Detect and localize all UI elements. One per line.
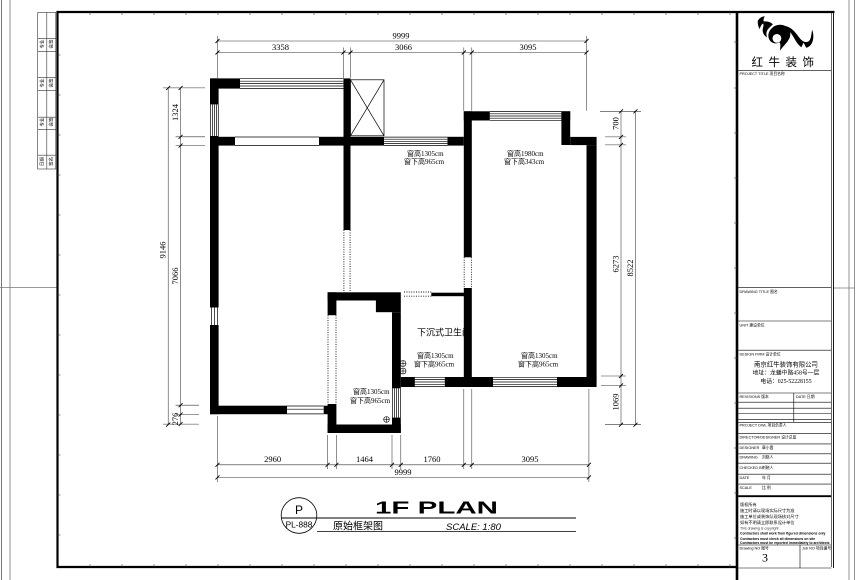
svg-text:年 月: 年 月 xyxy=(762,475,771,480)
svg-text:3: 3 xyxy=(762,551,768,565)
svg-text:SCALE: SCALE xyxy=(740,486,753,490)
svg-text:如有不明请立即联系设计单位: 如有不明请立即联系设计单位 xyxy=(740,519,794,526)
svg-text:DESIGNER: DESIGNER xyxy=(740,446,760,450)
svg-text:窗高1305cm: 窗高1305cm xyxy=(353,387,390,396)
svg-text:窗下高965cm: 窗下高965cm xyxy=(414,360,455,369)
svg-text:地址：龙蟠中路458号一层: 地址：龙蟠中路458号一层 xyxy=(753,369,820,377)
svg-text:刘晓人: 刘晓人 xyxy=(762,455,774,460)
svg-text:DATE 日期: DATE 日期 xyxy=(796,394,815,399)
svg-text:专业: 专业 xyxy=(39,78,46,87)
svg-text:1760: 1760 xyxy=(424,454,441,464)
svg-text:下沉式卫生间: 下沉式卫生间 xyxy=(417,327,471,338)
svg-text:DIRECTOR/DESIGNER 设计总监: DIRECTOR/DESIGNER 设计总监 xyxy=(740,434,797,439)
svg-text:8522: 8522 xyxy=(625,260,635,277)
svg-text:专业: 专业 xyxy=(39,117,46,126)
svg-text:9999: 9999 xyxy=(393,31,410,41)
svg-text:DRAWING TITLE 图名: DRAWING TITLE 图名 xyxy=(740,289,778,294)
svg-text:PL-888: PL-888 xyxy=(286,520,313,530)
svg-text:1464: 1464 xyxy=(356,454,374,464)
svg-text:窗下高965cm: 窗下高965cm xyxy=(404,157,445,166)
svg-text:窗高1305cm: 窗高1305cm xyxy=(407,149,444,158)
svg-text:原始框架图: 原始框架图 xyxy=(333,520,383,533)
svg-text:会签: 会签 xyxy=(48,117,55,126)
svg-text:1069: 1069 xyxy=(611,394,621,411)
svg-text:窗下高343cm: 窗下高343cm xyxy=(504,157,545,166)
svg-text:施工单位或装饰队现场核对尺寸: 施工单位或装饰队现场核对尺寸 xyxy=(740,513,799,520)
svg-text:276: 276 xyxy=(170,413,180,426)
svg-text:Contractors must be reported i: Contractors must be reported immediately… xyxy=(740,541,830,545)
svg-text:REVISIONS 版本: REVISIONS 版本 xyxy=(740,394,770,399)
svg-text:Contractors must check all dim: Contractors must check all dimensions on… xyxy=(740,537,815,541)
svg-text:3066: 3066 xyxy=(395,42,412,52)
svg-text:6273: 6273 xyxy=(611,256,621,273)
svg-text:章小霞: 章小霞 xyxy=(762,445,774,450)
svg-text:南京红牛装饰有限公司: 南京红牛装饰有限公司 xyxy=(754,360,818,369)
svg-text:1324: 1324 xyxy=(170,103,180,121)
svg-text:窗下高965cm: 窗下高965cm xyxy=(350,396,391,405)
svg-text:会签: 会签 xyxy=(48,39,55,48)
svg-text:9999: 9999 xyxy=(395,467,412,477)
svg-text:窗高1305cm: 窗高1305cm xyxy=(417,351,454,360)
svg-text:DESIGN FIRM 设计单位: DESIGN FIRM 设计单位 xyxy=(740,352,781,357)
svg-text:窗高1305cm: 窗高1305cm xyxy=(521,351,558,360)
svg-text:红牛装饰: 红牛装饰 xyxy=(752,55,820,69)
svg-text:签名: 签名 xyxy=(48,157,55,166)
svg-text:Contractors shall work from fi: Contractors shall work from figured dime… xyxy=(740,532,825,536)
svg-text:比 例: 比 例 xyxy=(762,485,771,490)
svg-text:3095: 3095 xyxy=(522,454,539,464)
svg-text:窗高1980cm: 窗高1980cm xyxy=(507,149,544,158)
svg-text:版权所有: 版权所有 xyxy=(740,501,757,508)
svg-text:会签: 会签 xyxy=(48,78,55,87)
svg-text:DATE: DATE xyxy=(740,476,750,480)
svg-text:电话：025-52228155: 电话：025-52228155 xyxy=(760,377,811,385)
svg-text:1F PLAN: 1F PLAN xyxy=(375,498,498,518)
svg-text:CHECKED BY: CHECKED BY xyxy=(740,466,765,470)
svg-text:Job NO 项目编号: Job NO 项目编号 xyxy=(802,546,831,551)
svg-text:PROJECT TITLE 项目名称: PROJECT TITLE 项目名称 xyxy=(740,71,785,76)
svg-text:3358: 3358 xyxy=(272,42,289,52)
svg-text:2960: 2960 xyxy=(264,454,281,464)
svg-text:刘晓人: 刘晓人 xyxy=(762,465,774,470)
svg-text:700: 700 xyxy=(611,117,621,130)
svg-text:SCALE: 1:80: SCALE: 1:80 xyxy=(446,522,502,533)
svg-text:施工时请以现场实际尺寸为准: 施工时请以现场实际尺寸为准 xyxy=(740,507,794,514)
svg-text:P: P xyxy=(295,503,303,517)
svg-text:3095: 3095 xyxy=(520,42,537,52)
svg-text:7066: 7066 xyxy=(170,268,180,285)
svg-text:PROJECT DWL 项目负责人: PROJECT DWL 项目负责人 xyxy=(740,422,787,427)
svg-text:专业: 专业 xyxy=(39,39,46,48)
svg-text:DRAWING: DRAWING xyxy=(740,456,758,460)
svg-text:窗下高965cm: 窗下高965cm xyxy=(518,360,559,369)
svg-text:UNIT 建设单位: UNIT 建设单位 xyxy=(740,323,765,328)
svg-text:This drawing is copyright: This drawing is copyright xyxy=(740,526,779,530)
svg-text:9146: 9146 xyxy=(158,242,168,259)
